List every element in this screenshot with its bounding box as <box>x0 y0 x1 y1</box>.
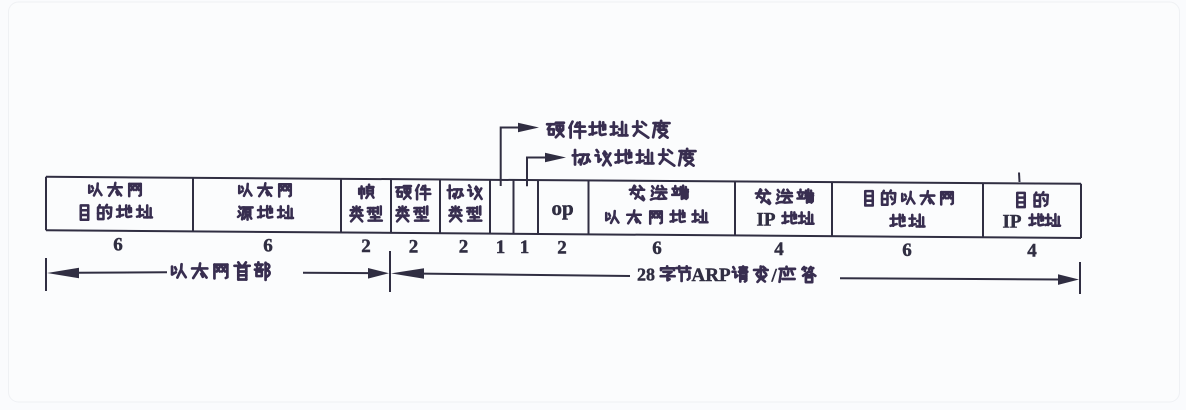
svg-text:op: op <box>552 196 574 220</box>
svg-text:2: 2 <box>361 236 371 257</box>
svg-text:4: 4 <box>1027 241 1037 262</box>
svg-text:6: 6 <box>113 234 123 255</box>
svg-text:ARP: ARP <box>692 265 731 286</box>
svg-text:IP: IP <box>1003 212 1022 233</box>
svg-text:6: 6 <box>652 238 662 259</box>
svg-text:6: 6 <box>902 240 912 261</box>
svg-text:IP: IP <box>757 210 776 231</box>
svg-text:28: 28 <box>637 264 655 284</box>
svg-text:2: 2 <box>459 237 469 258</box>
svg-text:/: / <box>771 266 778 287</box>
svg-text:4: 4 <box>774 239 784 260</box>
svg-text:2: 2 <box>557 237 567 258</box>
svg-text:1: 1 <box>496 237 506 258</box>
svg-text:2: 2 <box>409 236 419 257</box>
svg-text:1: 1 <box>520 237 530 258</box>
svg-text:6: 6 <box>263 235 273 256</box>
